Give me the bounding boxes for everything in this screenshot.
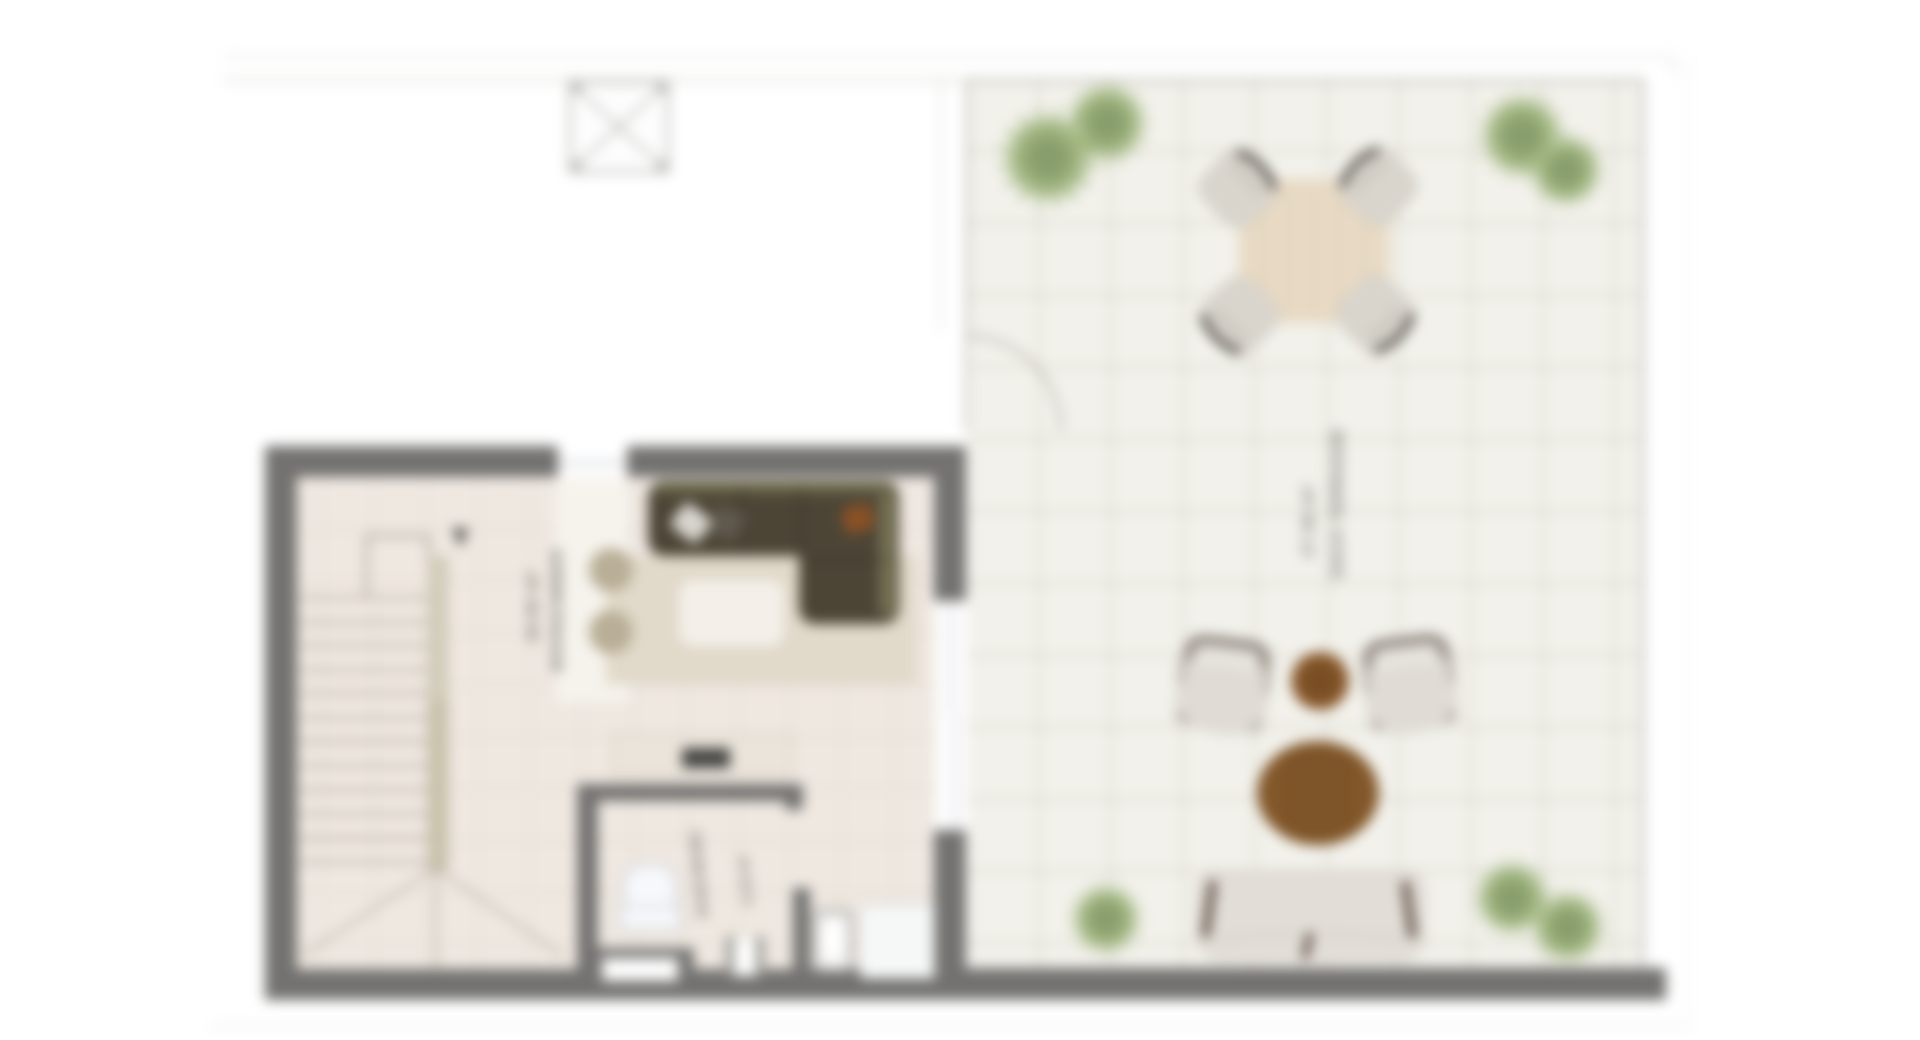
svg-text:16,50 m²: 16,50 m² bbox=[524, 569, 541, 643]
svg-text:WOHNZIMMER: WOHNZIMMER bbox=[549, 547, 566, 672]
svg-text:27,50 m²: 27,50 m² bbox=[1300, 483, 1317, 557]
svg-text:DACH TERRASSE: DACH TERRASSE bbox=[1329, 427, 1346, 578]
